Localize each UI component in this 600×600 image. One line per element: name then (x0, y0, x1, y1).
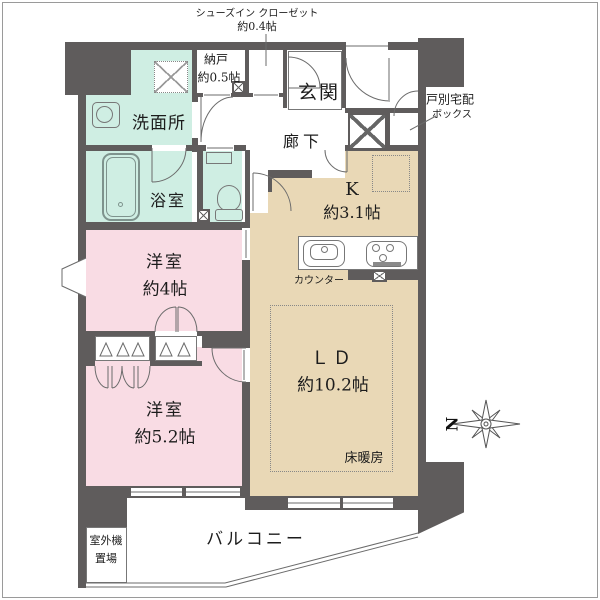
shoes-closet-label: シューズイン クローゼット (196, 9, 319, 20)
washroom-door-arc (201, 97, 233, 142)
floor-heating-label: 床暖房 (344, 452, 383, 466)
floor-plan: N シューズイン クローゼット 約0.4帖 納戸 約0.5帖 玄関 戸別宅配 ボ… (0, 0, 600, 600)
living-dining-size: 約10.2帖 (297, 377, 369, 396)
window-glass-line (131, 492, 393, 503)
delivery-box-label: 戸別宅配 (426, 93, 474, 106)
entrance-label: 玄関 (298, 83, 340, 104)
delivery-box-label2: ボックス (432, 110, 472, 121)
delivery-box-door-arc (394, 91, 418, 116)
bedroom1-label: 洋室 (146, 254, 184, 273)
storage-size: 約0.5帖 (197, 71, 240, 84)
entrance-door-arc (346, 58, 390, 101)
kitchen-size: 約3.1帖 (323, 204, 380, 222)
outdoor-unit-label2: 置場 (95, 553, 117, 565)
storage-label: 納戸 (204, 53, 228, 66)
compass-north-label: N (443, 417, 462, 432)
washroom-label: 洗面所 (132, 115, 186, 134)
bathroom-door-arc (152, 148, 186, 182)
bathroom-label: 浴室 (150, 192, 186, 210)
bay-window (62, 258, 86, 297)
door-jamb-lines (204, 95, 278, 380)
closet2-doors-arc (95, 366, 150, 388)
kitchen-door-arc (325, 150, 347, 172)
shoes-closet-size: 約0.4帖 (237, 21, 277, 33)
hanger-icon (100, 343, 144, 356)
living-dining-label: ＬＤ (311, 349, 355, 369)
hanger-icon (160, 343, 190, 356)
bedroom2-door-arc (212, 348, 246, 382)
bedroom2-label: 洋室 (146, 402, 184, 421)
counter-label: カウンター (294, 276, 344, 287)
kitchen-label: K (345, 180, 358, 200)
compass-icon (452, 400, 520, 448)
closet1-doors-arc (155, 307, 197, 332)
outdoor-unit-label: 室外機 (90, 535, 123, 547)
bedroom2-size: 約5.2帖 (134, 429, 195, 448)
corridor-door-arc (253, 173, 291, 211)
balcony-label: バルコニー (206, 531, 306, 550)
corridor-label: 廊下 (283, 133, 323, 151)
bedroom1-size: 約4帖 (143, 281, 188, 300)
